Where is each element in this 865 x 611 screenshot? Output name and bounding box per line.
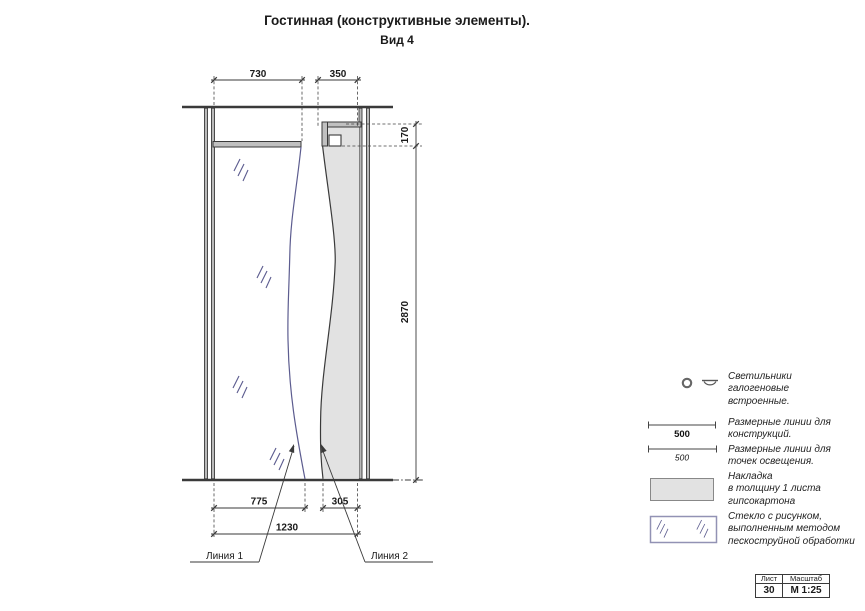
label-line-1: Линия 1 xyxy=(206,551,243,562)
dimension-sample-bold: 500 xyxy=(648,415,726,441)
sheet-label: Лист xyxy=(756,575,783,584)
label-line-2: Линия 2 xyxy=(371,551,408,562)
sample-value: 500 xyxy=(674,429,690,440)
glass-hatch-icon xyxy=(233,159,284,470)
drywall-overlay-region xyxy=(321,127,360,479)
legend-item-sandblasted-glass: Стекло с рисунком, выполненным методом п… xyxy=(648,511,864,551)
legend-item-dim-construction: 500 Размерные линии для конструкций. xyxy=(648,415,864,441)
lighting-notch xyxy=(329,135,341,146)
dim-2870: 2870 xyxy=(400,300,411,323)
legend-text: Стекло с рисунком, выполненным методом п… xyxy=(728,511,855,548)
sheet-number: 30 xyxy=(756,584,783,598)
sample-value: 500 xyxy=(675,453,689,463)
dimension-sample-italic: 500 xyxy=(648,443,726,469)
leader-arrow-icon xyxy=(289,443,297,453)
technical-drawing-page: Гостинная (конструктивные элементы). Вид… xyxy=(0,0,865,611)
dim-170: 170 xyxy=(400,126,411,143)
legend-text: Размерные линии для точек освещения. xyxy=(728,444,831,469)
scale-value: М 1:25 xyxy=(783,584,830,598)
dim-775: 775 xyxy=(251,497,268,508)
left-wall xyxy=(205,108,215,479)
legend-text: Накладка в толщину 1 листа гипсокартона xyxy=(728,471,821,508)
lamp-side-view-icon xyxy=(702,381,718,385)
legend-item-halogen-lights: Светильники галогеновые встроенные. xyxy=(648,371,864,415)
glass-swatch xyxy=(648,511,726,547)
dim-730: 730 xyxy=(250,69,267,80)
dim-305: 305 xyxy=(332,497,349,508)
legend-text: Размерные линии для конструкций. xyxy=(728,417,831,442)
dim-1230: 1230 xyxy=(276,523,299,534)
dimension-lines xyxy=(211,80,416,534)
legend-item-dim-lighting: 500 Размерные линии для точек освещения. xyxy=(648,443,864,469)
shelf-band xyxy=(213,142,301,148)
legend-text: Светильники галогеновые встроенные. xyxy=(728,371,792,408)
drywall-swatch xyxy=(648,471,726,505)
halogen-lamp-icons xyxy=(648,371,726,393)
legend-item-drywall-overlay: Накладка в толщину 1 листа гипсокартона xyxy=(648,471,864,511)
title-block: Лист Масштаб 30 М 1:25 xyxy=(755,574,830,598)
scale-label: Масштаб xyxy=(783,575,830,584)
right-wall xyxy=(359,108,370,479)
dim-350: 350 xyxy=(330,69,347,80)
lamp-top-view-icon xyxy=(683,379,691,387)
glass-line-1-curve xyxy=(288,147,305,479)
